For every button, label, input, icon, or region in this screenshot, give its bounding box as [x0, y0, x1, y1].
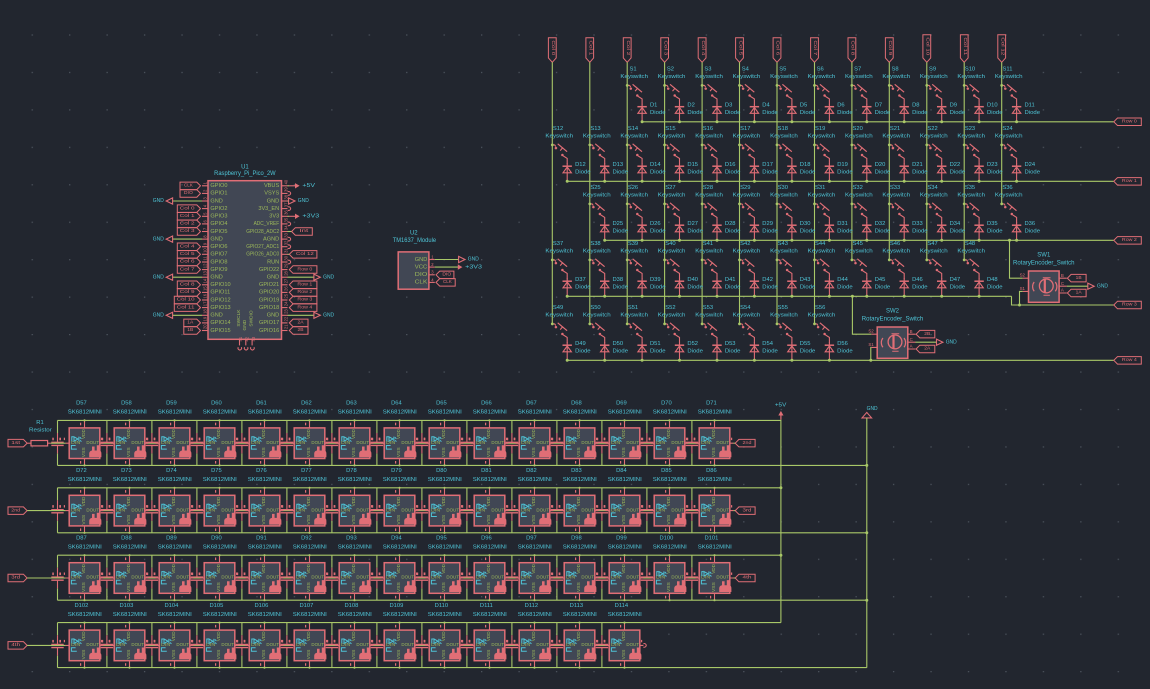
svg-text:SK6812MINI: SK6812MINI [248, 612, 282, 618]
svg-text:37: 37 [284, 202, 289, 207]
svg-text:Raspberry_Pi_Pico_2W: Raspberry_Pi_Pico_2W [214, 171, 276, 177]
svg-text:Col 9: Col 9 [887, 40, 893, 55]
svg-text:S47: S47 [927, 241, 937, 247]
svg-text:D104: D104 [164, 603, 179, 609]
svg-text:40: 40 [284, 179, 289, 184]
svg-text:D43: D43 [800, 277, 811, 283]
svg-text:12: 12 [202, 263, 207, 268]
svg-text:10: 10 [202, 248, 207, 253]
svg-text:D52: D52 [687, 341, 698, 347]
svg-text:GPIO13: GPIO13 [210, 305, 230, 311]
svg-text:SK6812MINI: SK6812MINI [158, 410, 192, 416]
svg-text:S53: S53 [703, 305, 713, 311]
svg-text:2nd: 2nd [11, 507, 20, 513]
svg-text:Keyswitch: Keyswitch [808, 192, 836, 198]
svg-text:Diode: Diode [613, 229, 629, 235]
svg-text:Diode: Diode [687, 349, 703, 355]
svg-text:26: 26 [284, 286, 289, 291]
svg-text:SK6812MINI: SK6812MINI [68, 477, 102, 483]
svg-text:Row 2: Row 2 [297, 289, 312, 295]
svg-text:S37: S37 [553, 241, 563, 247]
svg-text:Diode: Diode [950, 285, 966, 291]
svg-text:D101: D101 [704, 536, 718, 542]
svg-text:Row 3: Row 3 [1122, 302, 1137, 308]
svg-text:S26: S26 [628, 185, 638, 191]
svg-text:11: 11 [202, 256, 207, 261]
svg-text:S50: S50 [590, 305, 600, 311]
svg-text:22: 22 [284, 316, 289, 321]
svg-text:S2: S2 [868, 329, 874, 334]
svg-text:S14: S14 [628, 126, 639, 132]
svg-text:Keyswitch: Keyswitch [995, 192, 1023, 198]
svg-text:S22: S22 [927, 126, 937, 132]
svg-text:SK6812MINI: SK6812MINI [473, 545, 507, 551]
svg-text:+5V: +5V [302, 183, 315, 189]
svg-text:Diode: Diode [800, 285, 816, 291]
svg-text:Col 0: Col 0 [550, 40, 556, 55]
svg-text:GND: GND [468, 257, 479, 263]
svg-text:D88: D88 [121, 536, 132, 542]
svg-text:D25: D25 [613, 221, 624, 227]
svg-text:GPIO9: GPIO9 [210, 267, 227, 273]
svg-text:20: 20 [202, 324, 207, 329]
svg-text:Keyswitch: Keyswitch [808, 312, 836, 318]
svg-text:Col 12: Col 12 [999, 37, 1005, 55]
svg-text:Keyswitch: Keyswitch [845, 74, 873, 80]
svg-text:25: 25 [284, 293, 289, 298]
svg-text:D93: D93 [346, 536, 357, 542]
svg-text:2A: 2A [924, 346, 931, 352]
svg-text:1B: 1B [1076, 275, 1082, 281]
svg-text:D78: D78 [346, 468, 357, 474]
svg-text:Keyswitch: Keyswitch [620, 312, 648, 318]
svg-text:Int: Int [299, 228, 309, 234]
svg-text:Keyswitch: Keyswitch [695, 312, 723, 318]
svg-text:D87: D87 [76, 536, 87, 542]
svg-text:D85: D85 [661, 468, 672, 474]
svg-text:GPIO17: GPIO17 [259, 320, 279, 326]
svg-text:D37: D37 [575, 277, 586, 283]
svg-text:SK6812MINI: SK6812MINI [338, 410, 372, 416]
svg-text:D79: D79 [391, 468, 402, 474]
svg-text:D100: D100 [659, 536, 673, 542]
svg-text:Keyswitch: Keyswitch [733, 133, 761, 139]
svg-text:Diode: Diode [687, 170, 703, 176]
svg-text:Diode: Diode [687, 229, 703, 235]
svg-text:Diode: Diode [613, 285, 629, 291]
svg-text:Col 2: Col 2 [180, 221, 195, 227]
svg-text:Col 4: Col 4 [180, 243, 195, 249]
svg-text:Diode: Diode [1025, 170, 1041, 176]
svg-text:S42: S42 [740, 241, 750, 247]
svg-text:CLK: CLK [184, 183, 194, 189]
svg-text:Keyswitch: Keyswitch [658, 74, 686, 80]
svg-text:D96: D96 [481, 536, 492, 542]
svg-text:Diode: Diode [650, 349, 666, 355]
svg-text:SK6812MINI: SK6812MINI [563, 545, 597, 551]
svg-text:SK6812MINI: SK6812MINI [158, 477, 192, 483]
svg-text:Col 10: Col 10 [925, 37, 931, 55]
svg-text:S7: S7 [854, 66, 861, 72]
svg-text:SK6812MINI: SK6812MINI [203, 477, 237, 483]
svg-text:GND: GND [210, 198, 222, 204]
svg-text:Keyswitch: Keyswitch [770, 248, 798, 254]
svg-text:RotaryEncoder_Switch: RotaryEncoder_Switch [862, 316, 924, 322]
svg-text:SK6812MINI: SK6812MINI [518, 410, 552, 416]
svg-text:D105: D105 [209, 603, 223, 609]
svg-text:Diode: Diode [912, 285, 928, 291]
svg-text:S23: S23 [965, 126, 975, 132]
svg-text:S1: S1 [1020, 286, 1026, 291]
svg-text:S16: S16 [703, 126, 713, 132]
svg-text:Col 3: Col 3 [180, 228, 195, 234]
svg-text:U2: U2 [410, 231, 418, 237]
svg-text:D69: D69 [616, 401, 627, 407]
svg-text:GPIO21: GPIO21 [259, 282, 279, 288]
svg-text:D60: D60 [211, 401, 222, 407]
svg-text:D84: D84 [616, 468, 627, 474]
svg-text:SK6812MINI: SK6812MINI [698, 477, 732, 483]
svg-text:SK6812MINI: SK6812MINI [563, 612, 597, 618]
svg-text:Keyswitch: Keyswitch [658, 192, 686, 198]
svg-text:SK6812MINI: SK6812MINI [428, 410, 462, 416]
svg-text:S48: S48 [965, 241, 975, 247]
svg-text:Diode: Diode [837, 349, 853, 355]
svg-text:ADC_VREF: ADC_VREF [254, 221, 280, 227]
svg-text:GPIO0: GPIO0 [210, 183, 227, 189]
svg-text:GND: GND [415, 257, 428, 263]
svg-text:SK6812MINI: SK6812MINI [338, 477, 372, 483]
svg-text:1B: 1B [187, 327, 193, 333]
svg-text:S41: S41 [703, 241, 713, 247]
svg-text:D23: D23 [987, 162, 998, 168]
svg-text:Col 1: Col 1 [180, 213, 195, 219]
svg-text:Diode: Diode [837, 110, 853, 116]
svg-text:SK6812MINI: SK6812MINI [68, 410, 102, 416]
svg-text:Col 10: Col 10 [177, 297, 195, 303]
svg-text:Resistor: Resistor [29, 428, 52, 434]
svg-text:Diode: Diode [950, 110, 966, 116]
svg-text:Keyswitch: Keyswitch [620, 248, 648, 254]
svg-text:S38: S38 [590, 241, 600, 247]
svg-text:D12: D12 [575, 162, 586, 168]
svg-text:SK6812MINI: SK6812MINI [203, 612, 237, 618]
svg-text:Keyswitch: Keyswitch [733, 312, 761, 318]
svg-text:D54: D54 [762, 341, 773, 347]
svg-text:GND: GND [267, 275, 279, 281]
svg-text:SK6812MINI: SK6812MINI [248, 477, 282, 483]
svg-text:Diode: Diode [875, 110, 891, 116]
svg-text:Diode: Diode [613, 170, 629, 176]
svg-text:GPIO7: GPIO7 [210, 252, 227, 258]
svg-text:28: 28 [284, 270, 289, 275]
svg-text:GPIO15: GPIO15 [210, 328, 230, 334]
svg-text:CLK: CLK [443, 279, 453, 285]
svg-text:SK6812MINI: SK6812MINI [383, 410, 417, 416]
svg-text:S49: S49 [553, 305, 563, 311]
svg-text:SK6812MINI: SK6812MINI [248, 545, 282, 551]
svg-text:S39: S39 [628, 241, 638, 247]
svg-text:D70: D70 [661, 401, 672, 407]
svg-text:GPIO19: GPIO19 [259, 297, 279, 303]
svg-text:SK6812MINI: SK6812MINI [518, 545, 552, 551]
svg-text:Col 5: Col 5 [180, 251, 195, 257]
svg-text:SK6812MINI: SK6812MINI [473, 477, 507, 483]
svg-text:D68: D68 [571, 401, 582, 407]
svg-text:D106: D106 [254, 603, 268, 609]
svg-text:D63: D63 [346, 401, 357, 407]
svg-text:D76: D76 [256, 468, 267, 474]
svg-text:S3: S3 [704, 66, 711, 72]
svg-text:S36: S36 [1002, 185, 1012, 191]
svg-text:Keyswitch: Keyswitch [845, 133, 873, 139]
svg-text:Diode: Diode [987, 110, 1003, 116]
svg-text:SK6812MINI: SK6812MINI [653, 410, 687, 416]
svg-text:Diode: Diode [875, 170, 891, 176]
svg-text:D77: D77 [301, 468, 312, 474]
svg-text:S51: S51 [628, 305, 638, 311]
svg-text:Col 3: Col 3 [662, 40, 668, 55]
svg-text:GPIO11: GPIO11 [210, 290, 230, 296]
svg-text:Keyswitch: Keyswitch [845, 192, 873, 198]
svg-text:Keyswitch: Keyswitch [695, 74, 723, 80]
svg-text:SK6812MINI: SK6812MINI [293, 545, 327, 551]
svg-text:D72: D72 [76, 468, 87, 474]
svg-text:U1: U1 [241, 165, 249, 171]
svg-text:Keyswitch: Keyswitch [808, 248, 836, 254]
svg-text:GND: GND [242, 319, 248, 330]
svg-text:Col 11: Col 11 [177, 304, 195, 310]
svg-text:D45: D45 [875, 277, 886, 283]
svg-text:SW2: SW2 [886, 309, 900, 315]
svg-text:Col 11: Col 11 [962, 37, 968, 55]
svg-text:D67: D67 [526, 401, 537, 407]
svg-text:Diode: Diode [1025, 110, 1041, 116]
svg-text:Diode: Diode [762, 285, 778, 291]
svg-text:GPIO22: GPIO22 [259, 267, 279, 273]
svg-text:S46: S46 [890, 241, 900, 247]
svg-text:RUN: RUN [267, 259, 279, 265]
svg-text:SK6812MINI: SK6812MINI [158, 545, 192, 551]
svg-text:GPIO10: GPIO10 [210, 282, 230, 288]
svg-text:B: B [1061, 273, 1064, 278]
svg-text:VBUS: VBUS [264, 183, 280, 189]
svg-text:Diode: Diode [575, 349, 591, 355]
svg-text:D108: D108 [344, 603, 358, 609]
svg-text:Diode: Diode [650, 110, 666, 116]
svg-text:D110: D110 [435, 603, 448, 609]
svg-text:SK6812MINI: SK6812MINI [428, 477, 462, 483]
svg-text:GND: GND [153, 313, 164, 319]
svg-text:SK6812MINI: SK6812MINI [653, 545, 687, 551]
svg-text:D58: D58 [121, 401, 132, 407]
svg-text:D95: D95 [436, 536, 447, 542]
svg-text:Keyswitch: Keyswitch [957, 74, 985, 80]
svg-text:DIO: DIO [415, 272, 428, 278]
svg-text:GPIO6: GPIO6 [210, 244, 227, 250]
svg-text:+3V3: +3V3 [302, 214, 319, 220]
svg-text:D114: D114 [615, 603, 629, 609]
svg-text:SK6812MINI: SK6812MINI [428, 545, 462, 551]
svg-text:1A: 1A [1076, 290, 1083, 296]
svg-text:D20: D20 [875, 162, 886, 168]
svg-text:SK6812MINI: SK6812MINI [113, 410, 147, 416]
svg-text:D2: D2 [687, 103, 694, 109]
svg-text:GND: GND [267, 313, 279, 319]
svg-text:S44: S44 [815, 241, 826, 247]
svg-text:24: 24 [284, 301, 289, 306]
svg-text:S31: S31 [815, 185, 825, 191]
svg-text:D48: D48 [987, 277, 998, 283]
svg-text:Diode: Diode [875, 285, 891, 291]
svg-text:S24: S24 [1002, 126, 1013, 132]
svg-text:4th: 4th [743, 575, 752, 581]
svg-text:2nd: 2nd [743, 440, 752, 446]
svg-text:VSYS: VSYS [264, 191, 279, 197]
svg-text:D38: D38 [613, 277, 624, 283]
svg-text:Keyswitch: Keyswitch [808, 74, 836, 80]
svg-text:Keyswitch: Keyswitch [620, 192, 648, 198]
svg-text:S45: S45 [853, 241, 863, 247]
svg-text:Keyswitch: Keyswitch [920, 74, 948, 80]
svg-text:GND: GND [1097, 283, 1108, 289]
svg-text:3rd: 3rd [743, 507, 752, 513]
svg-text:Keyswitch: Keyswitch [658, 312, 686, 318]
svg-text:D113: D113 [570, 603, 583, 609]
svg-text:+5V: +5V [775, 402, 787, 408]
svg-text:Keyswitch: Keyswitch [545, 133, 573, 139]
svg-text:Col 9: Col 9 [180, 289, 195, 295]
svg-text:S10: S10 [965, 66, 975, 72]
svg-text:Keyswitch: Keyswitch [545, 248, 573, 254]
svg-text:Col 4: Col 4 [700, 40, 706, 55]
svg-text:D39: D39 [650, 277, 661, 283]
svg-text:GPIO20: GPIO20 [259, 290, 279, 296]
svg-text:Diode: Diode [762, 110, 778, 116]
svg-text:D53: D53 [725, 341, 736, 347]
svg-text:Keyswitch: Keyswitch [583, 248, 611, 254]
svg-text:Diode: Diode [987, 170, 1003, 176]
svg-text:Row 2: Row 2 [1122, 237, 1137, 243]
svg-text:S55: S55 [778, 305, 788, 311]
svg-text:SWDIO: SWDIO [248, 310, 254, 327]
svg-text:S18: S18 [778, 126, 788, 132]
svg-text:D74: D74 [166, 468, 177, 474]
svg-text:Keyswitch: Keyswitch [733, 248, 761, 254]
svg-text:Col 7: Col 7 [180, 266, 195, 272]
svg-text:Col 8: Col 8 [850, 40, 856, 55]
svg-text:D73: D73 [121, 468, 132, 474]
svg-text:3rd: 3rd [11, 575, 20, 581]
svg-text:GND: GND [946, 339, 957, 345]
svg-text:Diode: Diode [950, 170, 966, 176]
svg-text:SK6812MINI: SK6812MINI [113, 612, 147, 618]
svg-text:SK6812MINI: SK6812MINI [608, 477, 642, 483]
svg-text:S13: S13 [590, 126, 600, 132]
svg-text:Diode: Diode [650, 285, 666, 291]
svg-text:GND: GND [323, 313, 334, 319]
svg-text:Diode: Diode [613, 349, 629, 355]
svg-text:S40: S40 [665, 241, 675, 247]
svg-text:D51: D51 [650, 341, 661, 347]
svg-text:Keyswitch: Keyswitch [995, 133, 1023, 139]
svg-text:D26: D26 [650, 221, 661, 227]
svg-text:Row 0: Row 0 [297, 266, 312, 272]
svg-text:SK6812MINI: SK6812MINI [608, 612, 642, 618]
svg-text:GND: GND [210, 313, 222, 319]
svg-text:S34: S34 [927, 185, 938, 191]
svg-text:14: 14 [202, 278, 207, 283]
svg-text:SK6812MINI: SK6812MINI [473, 612, 507, 618]
svg-text:2A: 2A [298, 320, 305, 326]
svg-text:SK6812MINI: SK6812MINI [293, 477, 327, 483]
svg-text:D82: D82 [526, 468, 537, 474]
svg-text:TM1637_Module: TM1637_Module [393, 238, 437, 244]
svg-text:Diode: Diode [725, 170, 741, 176]
svg-text:D66: D66 [481, 401, 492, 407]
svg-text:GPIO12: GPIO12 [210, 297, 230, 303]
svg-text:SK6812MINI: SK6812MINI [563, 477, 597, 483]
svg-text:DIO: DIO [442, 272, 451, 278]
svg-text:D112: D112 [525, 603, 538, 609]
svg-text:15: 15 [202, 286, 207, 291]
svg-text:Keyswitch: Keyswitch [882, 248, 910, 254]
svg-text:SK6812MINI: SK6812MINI [698, 410, 732, 416]
svg-text:Row 4: Row 4 [297, 304, 312, 310]
svg-text:D41: D41 [725, 277, 736, 283]
svg-text:A: A [1061, 288, 1064, 293]
svg-text:S1: S1 [868, 342, 874, 347]
svg-text:D28: D28 [725, 221, 736, 227]
svg-text:SK6812MINI: SK6812MINI [383, 545, 417, 551]
svg-text:SK6812MINI: SK6812MINI [698, 545, 732, 551]
svg-text:Diode: Diode [837, 229, 853, 235]
svg-text:27: 27 [284, 278, 289, 283]
svg-text:S35: S35 [965, 185, 975, 191]
svg-text:D102: D102 [74, 603, 88, 609]
svg-text:GPIO14: GPIO14 [210, 320, 230, 326]
svg-text:GND: GND [323, 274, 334, 280]
svg-text:D61: D61 [256, 401, 267, 407]
svg-text:Keyswitch: Keyswitch [620, 74, 648, 80]
svg-text:Keyswitch: Keyswitch [882, 74, 910, 80]
svg-text:S8: S8 [892, 66, 899, 72]
svg-text:GND: GND [267, 198, 279, 204]
svg-text:GPIO2: GPIO2 [210, 206, 227, 212]
svg-text:SK6812MINI: SK6812MINI [518, 612, 552, 618]
svg-text:Keyswitch: Keyswitch [583, 133, 611, 139]
svg-text:SK6812MINI: SK6812MINI [293, 612, 327, 618]
svg-text:41: 41 [238, 336, 243, 341]
svg-text:GND: GND [867, 406, 878, 412]
svg-text:Keyswitch: Keyswitch [920, 248, 948, 254]
svg-text:39: 39 [284, 187, 289, 192]
svg-text:GPIO18: GPIO18 [259, 305, 279, 311]
svg-text:Row 1: Row 1 [1122, 178, 1137, 184]
svg-text:2B: 2B [298, 327, 304, 333]
svg-text:GND: GND [210, 236, 222, 242]
svg-text:Keyswitch: Keyswitch [882, 192, 910, 198]
svg-text:Keyswitch: Keyswitch [770, 312, 798, 318]
svg-text:GPIO16: GPIO16 [259, 328, 279, 334]
svg-text:S25: S25 [590, 185, 600, 191]
svg-text:D18: D18 [800, 162, 811, 168]
svg-text:D27: D27 [687, 221, 698, 227]
svg-text:Diode: Diode [1025, 229, 1041, 235]
svg-text:GPIO27_ADC1: GPIO27_ADC1 [246, 244, 279, 250]
svg-text:D81: D81 [481, 468, 492, 474]
svg-text:Col 7: Col 7 [812, 40, 818, 55]
